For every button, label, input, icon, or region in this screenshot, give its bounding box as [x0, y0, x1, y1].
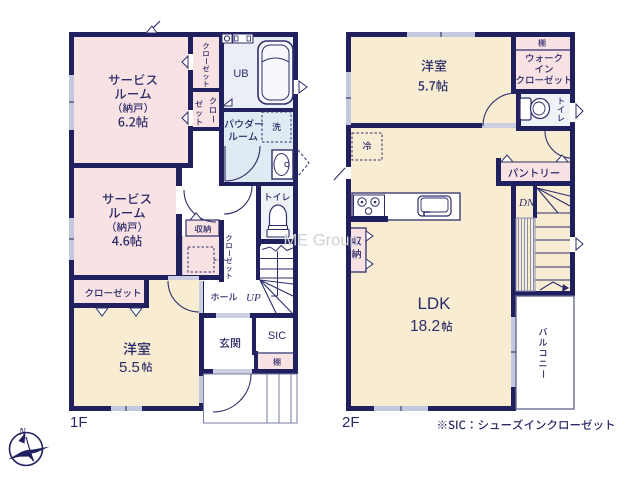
svg-text:2F: 2F	[342, 414, 360, 431]
svg-text:SIC: SIC	[268, 330, 286, 342]
svg-text:5.5: 5.5	[119, 359, 140, 376]
svg-text:ME Group: ME Group	[284, 232, 359, 250]
svg-text:N: N	[18, 427, 27, 438]
svg-text:UB: UB	[233, 68, 248, 80]
svg-text:UP: UP	[246, 292, 261, 304]
svg-text:LDK: LDK	[417, 294, 451, 313]
svg-text:1F: 1F	[70, 414, 88, 431]
svg-text:18.2: 18.2	[410, 318, 440, 335]
svg-text:DN: DN	[518, 197, 535, 209]
